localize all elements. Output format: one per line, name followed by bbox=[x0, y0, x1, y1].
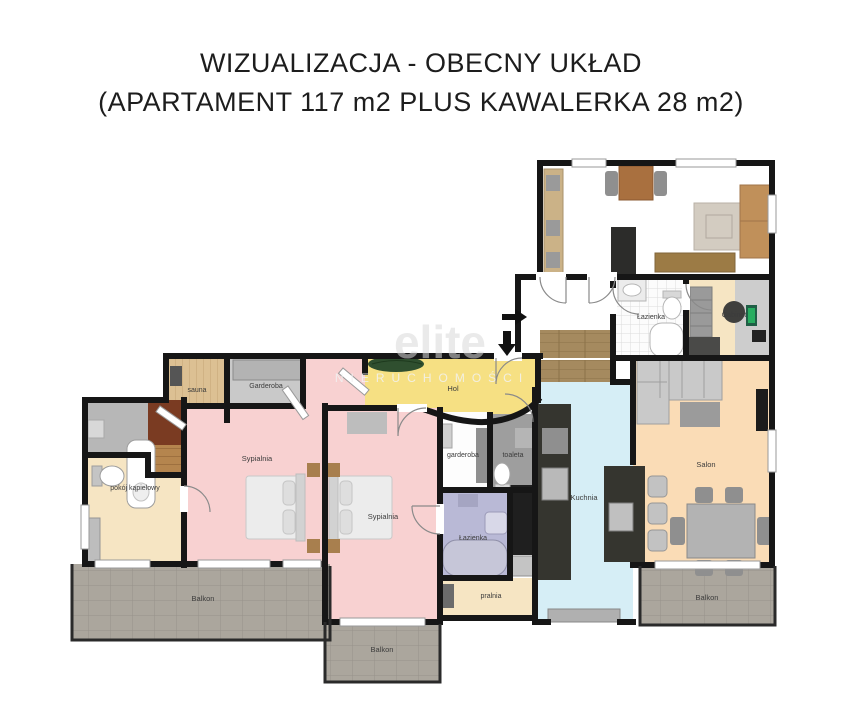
dining-chair bbox=[725, 487, 743, 503]
printer bbox=[752, 330, 766, 342]
bathtub-kawalerka bbox=[650, 323, 683, 357]
title-line-1: WIZUALIZACJA - OBECNY UKŁAD bbox=[0, 44, 842, 83]
label-lazienka: Łazienka bbox=[459, 535, 487, 542]
washbasin-bowl bbox=[623, 284, 641, 296]
bed-headboard bbox=[329, 474, 338, 541]
label-balkon-middle: Balkon bbox=[371, 645, 394, 654]
monitor-screen bbox=[748, 308, 755, 323]
washbasin bbox=[485, 512, 507, 534]
page-title: WIZUALIZACJA - OBECNY UKŁAD (APARTAMENT … bbox=[0, 44, 842, 122]
label-garderoba-small: garderoba bbox=[447, 452, 479, 459]
label-sauna: sauna bbox=[187, 387, 206, 394]
coffee-table bbox=[680, 402, 720, 427]
window bbox=[81, 505, 89, 549]
nightstand bbox=[327, 539, 340, 553]
wardrobe-box bbox=[546, 252, 560, 268]
bed-sypialnia2 bbox=[330, 476, 392, 539]
rug bbox=[694, 203, 744, 250]
bar-stool bbox=[648, 476, 667, 497]
corner-sofa-chaise bbox=[637, 360, 669, 424]
gabinet-sofa bbox=[690, 287, 712, 337]
pillow bbox=[340, 510, 352, 534]
window bbox=[283, 560, 321, 568]
label-kuchnia: Kuchnia bbox=[570, 493, 598, 502]
corridor-wood-floor bbox=[538, 360, 613, 382]
kitchen-sink bbox=[542, 468, 568, 500]
wardrobe-box bbox=[546, 220, 560, 236]
nightstand bbox=[307, 463, 320, 477]
pillow bbox=[283, 481, 295, 505]
label-garderoba: Garderoba bbox=[249, 383, 283, 390]
window bbox=[340, 618, 425, 626]
dining-chair bbox=[670, 517, 685, 545]
label-salon: Salon bbox=[696, 460, 715, 469]
label-hol: Hol bbox=[447, 384, 459, 393]
kawalerka-entry-wood-floor bbox=[540, 330, 613, 358]
pillow bbox=[340, 481, 352, 505]
kitchen-counter bbox=[542, 428, 568, 454]
island-sink bbox=[609, 503, 633, 531]
garderoba-wardrobe bbox=[233, 360, 301, 380]
window bbox=[198, 560, 270, 568]
toilet bbox=[494, 463, 510, 485]
nightstand bbox=[327, 463, 340, 477]
wardrobe-box bbox=[546, 175, 560, 191]
sideboard bbox=[655, 253, 735, 272]
door-gap bbox=[180, 486, 188, 512]
bed-headboard bbox=[296, 474, 305, 541]
window bbox=[95, 560, 150, 568]
storage-item bbox=[88, 420, 104, 438]
toaleta-shelf bbox=[515, 428, 533, 448]
chair bbox=[605, 171, 618, 196]
door-gap bbox=[436, 504, 444, 534]
label-sypialnia1: Sypialnia bbox=[242, 454, 273, 463]
watermark-brand: elite bbox=[394, 316, 486, 368]
bath-counter bbox=[458, 494, 478, 507]
label-gabinet: Gabinet bbox=[722, 312, 747, 319]
gabinet-closet bbox=[688, 337, 720, 356]
shaft bbox=[510, 485, 535, 555]
chair bbox=[654, 171, 667, 196]
watermark: elite NIERUCHOMOŚCI bbox=[335, 316, 529, 385]
label-pokoj-kapielowy: pokój kąpielowy bbox=[110, 485, 160, 492]
label-lazienka-kawalerka: Łazienka bbox=[637, 314, 665, 321]
window bbox=[768, 430, 776, 472]
kitchen-column-kawalerka bbox=[611, 227, 636, 274]
tv-unit bbox=[756, 389, 768, 431]
title-line-2: (APARTAMENT 117 m2 PLUS KAWALERKA 28 m2) bbox=[0, 83, 842, 122]
dining-table bbox=[687, 504, 755, 558]
label-balkon-left: Balkon bbox=[192, 594, 215, 603]
label-toaleta: toaleta bbox=[502, 452, 523, 459]
sauna-heater bbox=[170, 366, 182, 386]
window bbox=[768, 195, 776, 233]
dining-chair bbox=[695, 487, 713, 503]
toilet bbox=[663, 297, 681, 319]
bathtub bbox=[443, 540, 507, 576]
bar-stool bbox=[648, 530, 667, 551]
label-balkon-right: Balkon bbox=[696, 593, 719, 602]
washing-machine bbox=[512, 556, 533, 576]
dining-table-kawalerka bbox=[619, 166, 653, 200]
nightstand bbox=[307, 539, 320, 553]
window bbox=[655, 561, 760, 569]
pillow bbox=[283, 510, 295, 534]
bar-stool bbox=[648, 503, 667, 524]
dresser bbox=[347, 412, 387, 434]
door-gap bbox=[587, 272, 617, 281]
toilet bbox=[100, 466, 124, 486]
window bbox=[572, 159, 606, 167]
floorplan-page: WIZUALIZACJA - OBECNY UKŁAD (APARTAMENT … bbox=[0, 0, 842, 715]
label-sypialnia2: Sypialnia bbox=[368, 512, 399, 521]
label-pralnia: pralnia bbox=[480, 593, 501, 600]
doormat bbox=[548, 609, 620, 622]
watermark-subtitle: NIERUCHOMOŚCI bbox=[335, 370, 529, 385]
window bbox=[676, 159, 736, 167]
